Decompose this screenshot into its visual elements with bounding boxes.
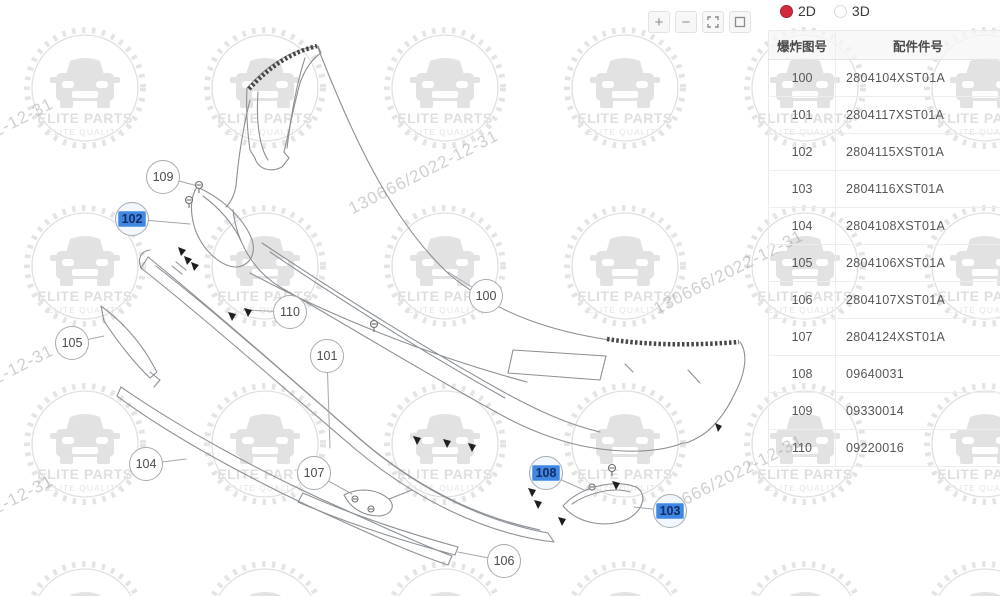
callout-109[interactable]: 109 <box>146 160 180 194</box>
callout-101[interactable]: 101 <box>310 339 344 373</box>
part-number-cell[interactable]: 2804108XST01A <box>836 208 1000 245</box>
part-number-cell[interactable]: 09640031 <box>836 356 1000 393</box>
radio-unselected-icon[interactable] <box>834 5 847 18</box>
callout-label: 105 <box>62 337 83 350</box>
fig-number-cell[interactable]: 105 <box>769 245 836 282</box>
part-number-cell[interactable]: 2804106XST01A <box>836 245 1000 282</box>
part-number-cell[interactable]: 2804104XST01A <box>836 60 1000 97</box>
fig-number-cell[interactable]: 104 <box>769 208 836 245</box>
mode-label: 2D <box>798 3 816 19</box>
reset-view-button[interactable] <box>729 11 751 33</box>
parts-table-row[interactable]: 1032804116XST01A <box>769 171 1000 208</box>
parts-table-row[interactable]: 1012804117XST01A <box>769 97 1000 134</box>
callout-layer: 109102110100101105104107108103106 <box>0 0 768 596</box>
callout-100[interactable]: 100 <box>469 279 503 313</box>
fig-number-cell[interactable]: 110 <box>769 430 836 467</box>
parts-table-row[interactable]: 1042804108XST01A <box>769 208 1000 245</box>
fig-number-cell[interactable]: 103 <box>769 171 836 208</box>
callout-105[interactable]: 105 <box>55 326 89 360</box>
radio-selected-icon[interactable] <box>780 5 793 18</box>
callout-107[interactable]: 107 <box>297 456 331 490</box>
fig-number-cell[interactable]: 106 <box>769 282 836 319</box>
fullscreen-icon <box>707 16 719 28</box>
callout-label: 106 <box>494 555 515 568</box>
header-part-number: 配件件号 <box>836 31 1000 60</box>
callout-label: 100 <box>476 290 497 303</box>
callout-label: 102 <box>118 211 147 228</box>
mode-option-3d[interactable]: 3D <box>834 3 870 19</box>
callout-label: 104 <box>136 458 157 471</box>
callout-102[interactable]: 102 <box>115 202 149 236</box>
parts-table-header-row: 爆炸图号 配件件号 <box>769 31 1000 60</box>
part-number-cell[interactable]: 2804115XST01A <box>836 134 1000 171</box>
callout-label: 107 <box>304 467 325 480</box>
part-number-cell[interactable]: 2804116XST01A <box>836 171 1000 208</box>
fig-number-cell[interactable]: 100 <box>769 60 836 97</box>
parts-catalog-app: ELITE PARTS ELITE QUALITY 130666/2022-12… <box>0 0 1000 596</box>
square-icon <box>734 16 746 28</box>
diagram-viewer-canvas[interactable]: 109102110100101105104107108103106 + − <box>0 0 768 596</box>
fullscreen-button[interactable] <box>702 11 724 33</box>
zoom-in-button[interactable]: + <box>648 11 670 33</box>
fig-number-cell[interactable]: 101 <box>769 97 836 134</box>
part-number-cell[interactable]: 09330014 <box>836 393 1000 430</box>
parts-table-row[interactable]: 1072804124XST01A <box>769 319 1000 356</box>
fig-number-cell[interactable]: 109 <box>769 393 836 430</box>
fig-number-cell[interactable]: 107 <box>769 319 836 356</box>
mode-label: 3D <box>852 3 870 19</box>
callout-106[interactable]: 106 <box>487 544 521 578</box>
callout-label: 109 <box>153 171 174 184</box>
part-number-cell[interactable]: 2804124XST01A <box>836 319 1000 356</box>
zoom-out-button[interactable]: − <box>675 11 697 33</box>
callout-label: 108 <box>532 465 561 482</box>
parts-table-row[interactable]: 1022804115XST01A <box>769 134 1000 171</box>
parts-table-row[interactable]: 10809640031 <box>769 356 1000 393</box>
parts-table: 爆炸图号 配件件号 1002804104XST01A1012804117XST0… <box>768 30 1000 467</box>
parts-table-row[interactable]: 1062804107XST01A <box>769 282 1000 319</box>
callout-104[interactable]: 104 <box>129 447 163 481</box>
callout-103[interactable]: 103 <box>653 494 687 528</box>
callout-108[interactable]: 108 <box>529 456 563 490</box>
parts-table-row[interactable]: 11009220016 <box>769 430 1000 467</box>
part-number-cell[interactable]: 2804107XST01A <box>836 282 1000 319</box>
viewer-toolbar: + − <box>648 11 751 33</box>
parts-table-row[interactable]: 1002804104XST01A <box>769 60 1000 97</box>
callout-label: 103 <box>656 503 685 520</box>
part-number-cell[interactable]: 09220016 <box>836 430 1000 467</box>
mode-option-2d[interactable]: 2D <box>780 3 816 19</box>
callout-label: 101 <box>317 350 338 363</box>
parts-table-row[interactable]: 10909330014 <box>769 393 1000 430</box>
callout-label: 110 <box>280 306 300 319</box>
fig-number-cell[interactable]: 102 <box>769 134 836 171</box>
fig-number-cell[interactable]: 108 <box>769 356 836 393</box>
parts-panel: 2D3D 爆炸图号 配件件号 1002804104XST01A101280411… <box>768 0 1000 596</box>
parts-table-row[interactable]: 1052804106XST01A <box>769 245 1000 282</box>
view-mode-switch: 2D3D <box>780 3 870 19</box>
callout-110[interactable]: 110 <box>273 295 307 329</box>
part-number-cell[interactable]: 2804117XST01A <box>836 97 1000 134</box>
header-fig-number: 爆炸图号 <box>769 31 836 60</box>
